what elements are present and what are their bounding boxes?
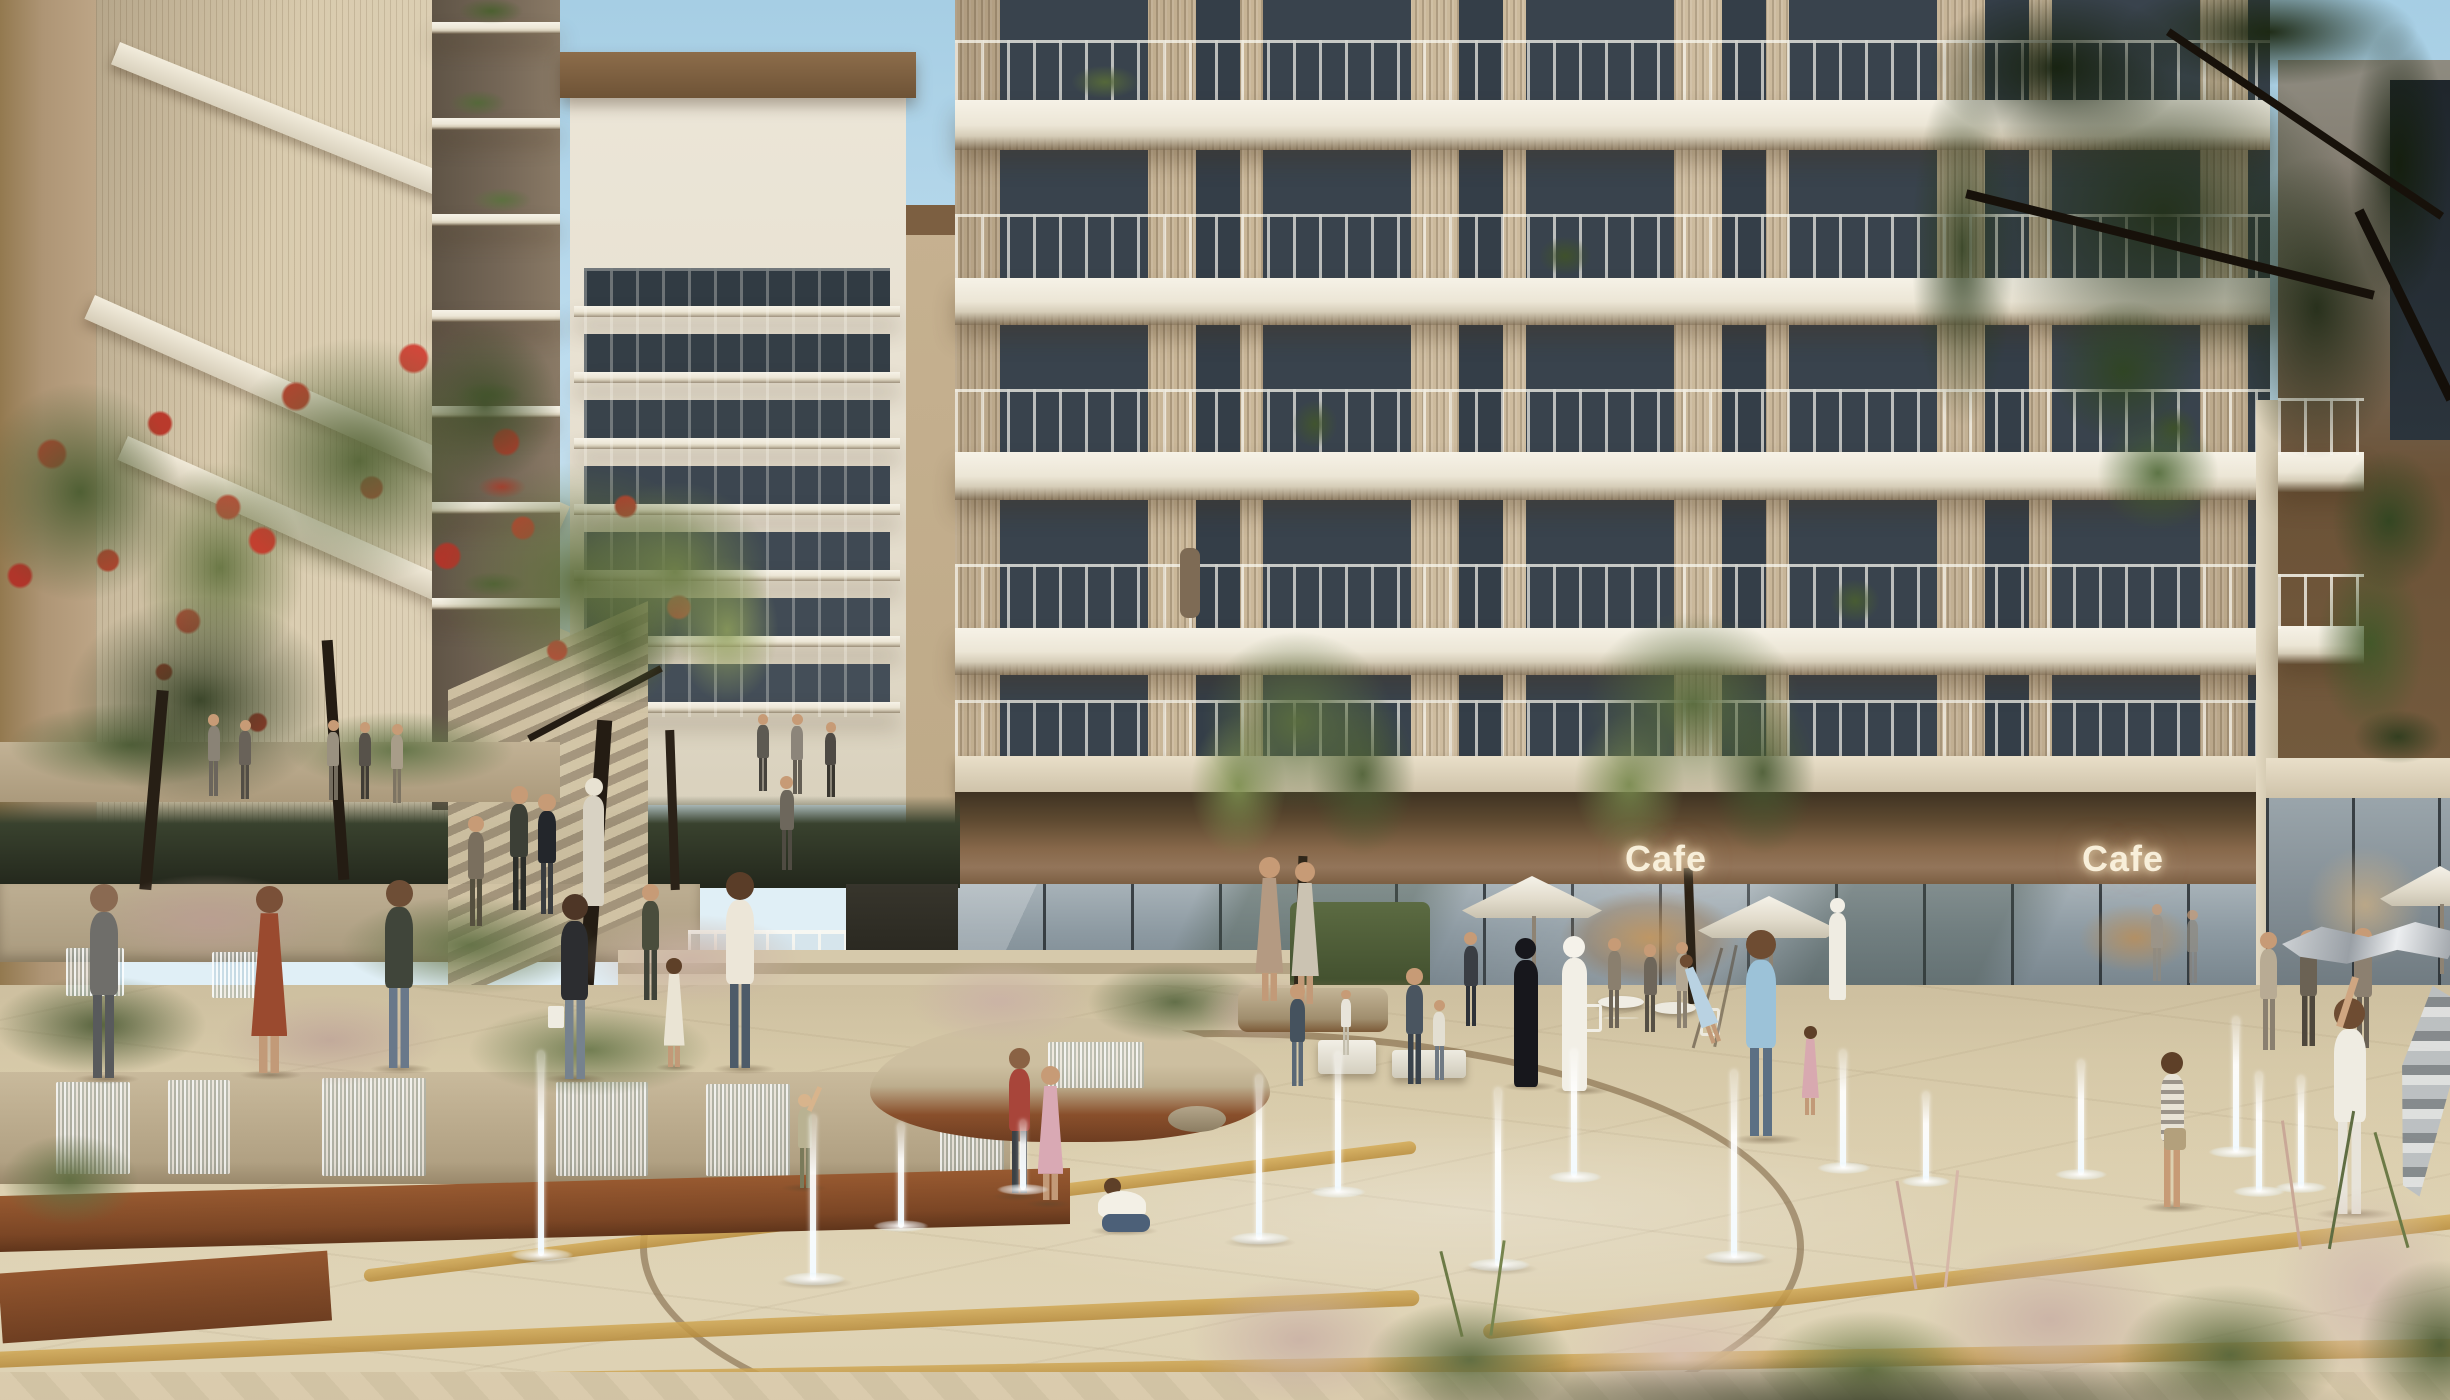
woman-rust-dress — [252, 886, 287, 1078]
woman-black-shopper — [558, 894, 592, 1082]
umbrella-canopy — [1462, 876, 1602, 918]
seated-kandura-man — [1828, 898, 1847, 1002]
fountain-jet — [538, 1051, 544, 1256]
balcony-plant — [1060, 60, 1150, 104]
midrise-slat-panels — [600, 98, 886, 266]
balcony-plant — [440, 86, 516, 120]
jet-splash — [1539, 1169, 1611, 1185]
fountain-jet — [898, 1123, 904, 1228]
man-white-shirt — [722, 872, 758, 1072]
stair-visitor — [640, 884, 661, 1002]
balcony-plant — [462, 184, 542, 216]
umbrella-canopy — [2380, 866, 2450, 906]
shopping-bag — [548, 1006, 564, 1028]
stair-visitor — [466, 816, 486, 928]
jet-splash — [1220, 1230, 1300, 1247]
jet-splash — [500, 1246, 584, 1264]
right-cafe-patron — [2258, 932, 2280, 1052]
mannequin — [2186, 910, 2199, 984]
girl-white-dress — [664, 958, 684, 1070]
mother-on-bench — [1404, 968, 1425, 1086]
green-tree-canopy — [545, 450, 805, 740]
plaza-render: Cafe Cafe — [0, 0, 2450, 1400]
stair-visitor — [536, 794, 558, 916]
fountain-jet — [2078, 1060, 2084, 1175]
fountain-jet — [1731, 1070, 1737, 1258]
fountain-jet — [1571, 1049, 1577, 1177]
fountain-jet — [2233, 1017, 2239, 1152]
pedestrian — [390, 724, 404, 804]
fountain-jet — [2256, 1072, 2262, 1192]
pedestrian — [756, 714, 770, 792]
boulder — [1168, 1106, 1226, 1132]
fountain-jet — [810, 1115, 816, 1280]
crouching-boy — [1096, 1178, 1160, 1236]
cafe-sign-right: Cafe — [2043, 838, 2203, 880]
building-sliver-cap — [906, 205, 958, 235]
pedestrian — [358, 722, 372, 800]
jet-splash — [1808, 1160, 1880, 1176]
cafe-tree-canopy — [1168, 600, 1438, 890]
leaf-cluster — [2020, 270, 2250, 560]
stair-visitor — [508, 786, 531, 912]
woman-olive-top — [382, 880, 417, 1072]
mannequin — [2150, 904, 2164, 982]
jet-splash — [864, 1218, 938, 1234]
jet-splash — [2046, 1167, 2116, 1182]
fountain-jet — [1840, 1050, 1846, 1168]
girl-pink-dress-right — [1802, 1026, 1819, 1118]
balcony-slab — [432, 118, 560, 130]
fountain-jet — [1923, 1092, 1929, 1182]
jet-splash — [1893, 1174, 1959, 1189]
man-grey-suit — [86, 884, 122, 1082]
cafe-patron — [1606, 938, 1623, 1030]
balcony-plant — [1285, 392, 1345, 456]
child-on-bench — [1432, 1000, 1447, 1082]
jet-splash — [988, 1182, 1058, 1197]
midrise-cornice — [560, 52, 916, 98]
cafe-sign-left: Cafe — [1586, 838, 1746, 880]
pedestrian — [238, 720, 252, 800]
cafe-patron-seated — [1462, 932, 1479, 1028]
stair-visitor-robe — [582, 778, 605, 908]
cafe-patron — [1642, 944, 1658, 1034]
fountain-jet — [1495, 1088, 1501, 1266]
pedestrian — [824, 722, 838, 798]
fountain-jet — [1256, 1075, 1262, 1240]
jet-splash — [1693, 1248, 1777, 1266]
patio-umbrella — [1462, 876, 1602, 918]
crouching-boy-legs — [1102, 1214, 1150, 1232]
toddler-on-bench — [1340, 990, 1352, 1056]
fountain-jet — [1335, 1052, 1341, 1192]
running-boy-shorts — [2164, 1128, 2186, 1150]
leaf-cluster — [2290, 420, 2450, 780]
balcony-plant — [1530, 230, 1600, 282]
fountain-jet — [1020, 1120, 1026, 1190]
jet-splash — [1301, 1184, 1375, 1200]
jet-splash — [772, 1270, 856, 1288]
patio-umbrella — [2380, 866, 2450, 906]
woman-black-abaya — [1512, 938, 1539, 1090]
stair-visitor — [778, 776, 795, 872]
cafe-boy-standing — [1288, 984, 1307, 1088]
water-cascade — [168, 1080, 230, 1174]
terrace-woman — [1256, 857, 1283, 1005]
pedestrian — [326, 720, 341, 802]
pedestrian — [206, 714, 221, 798]
father-blue-polo — [1742, 930, 1780, 1140]
water-cascade — [706, 1084, 790, 1176]
